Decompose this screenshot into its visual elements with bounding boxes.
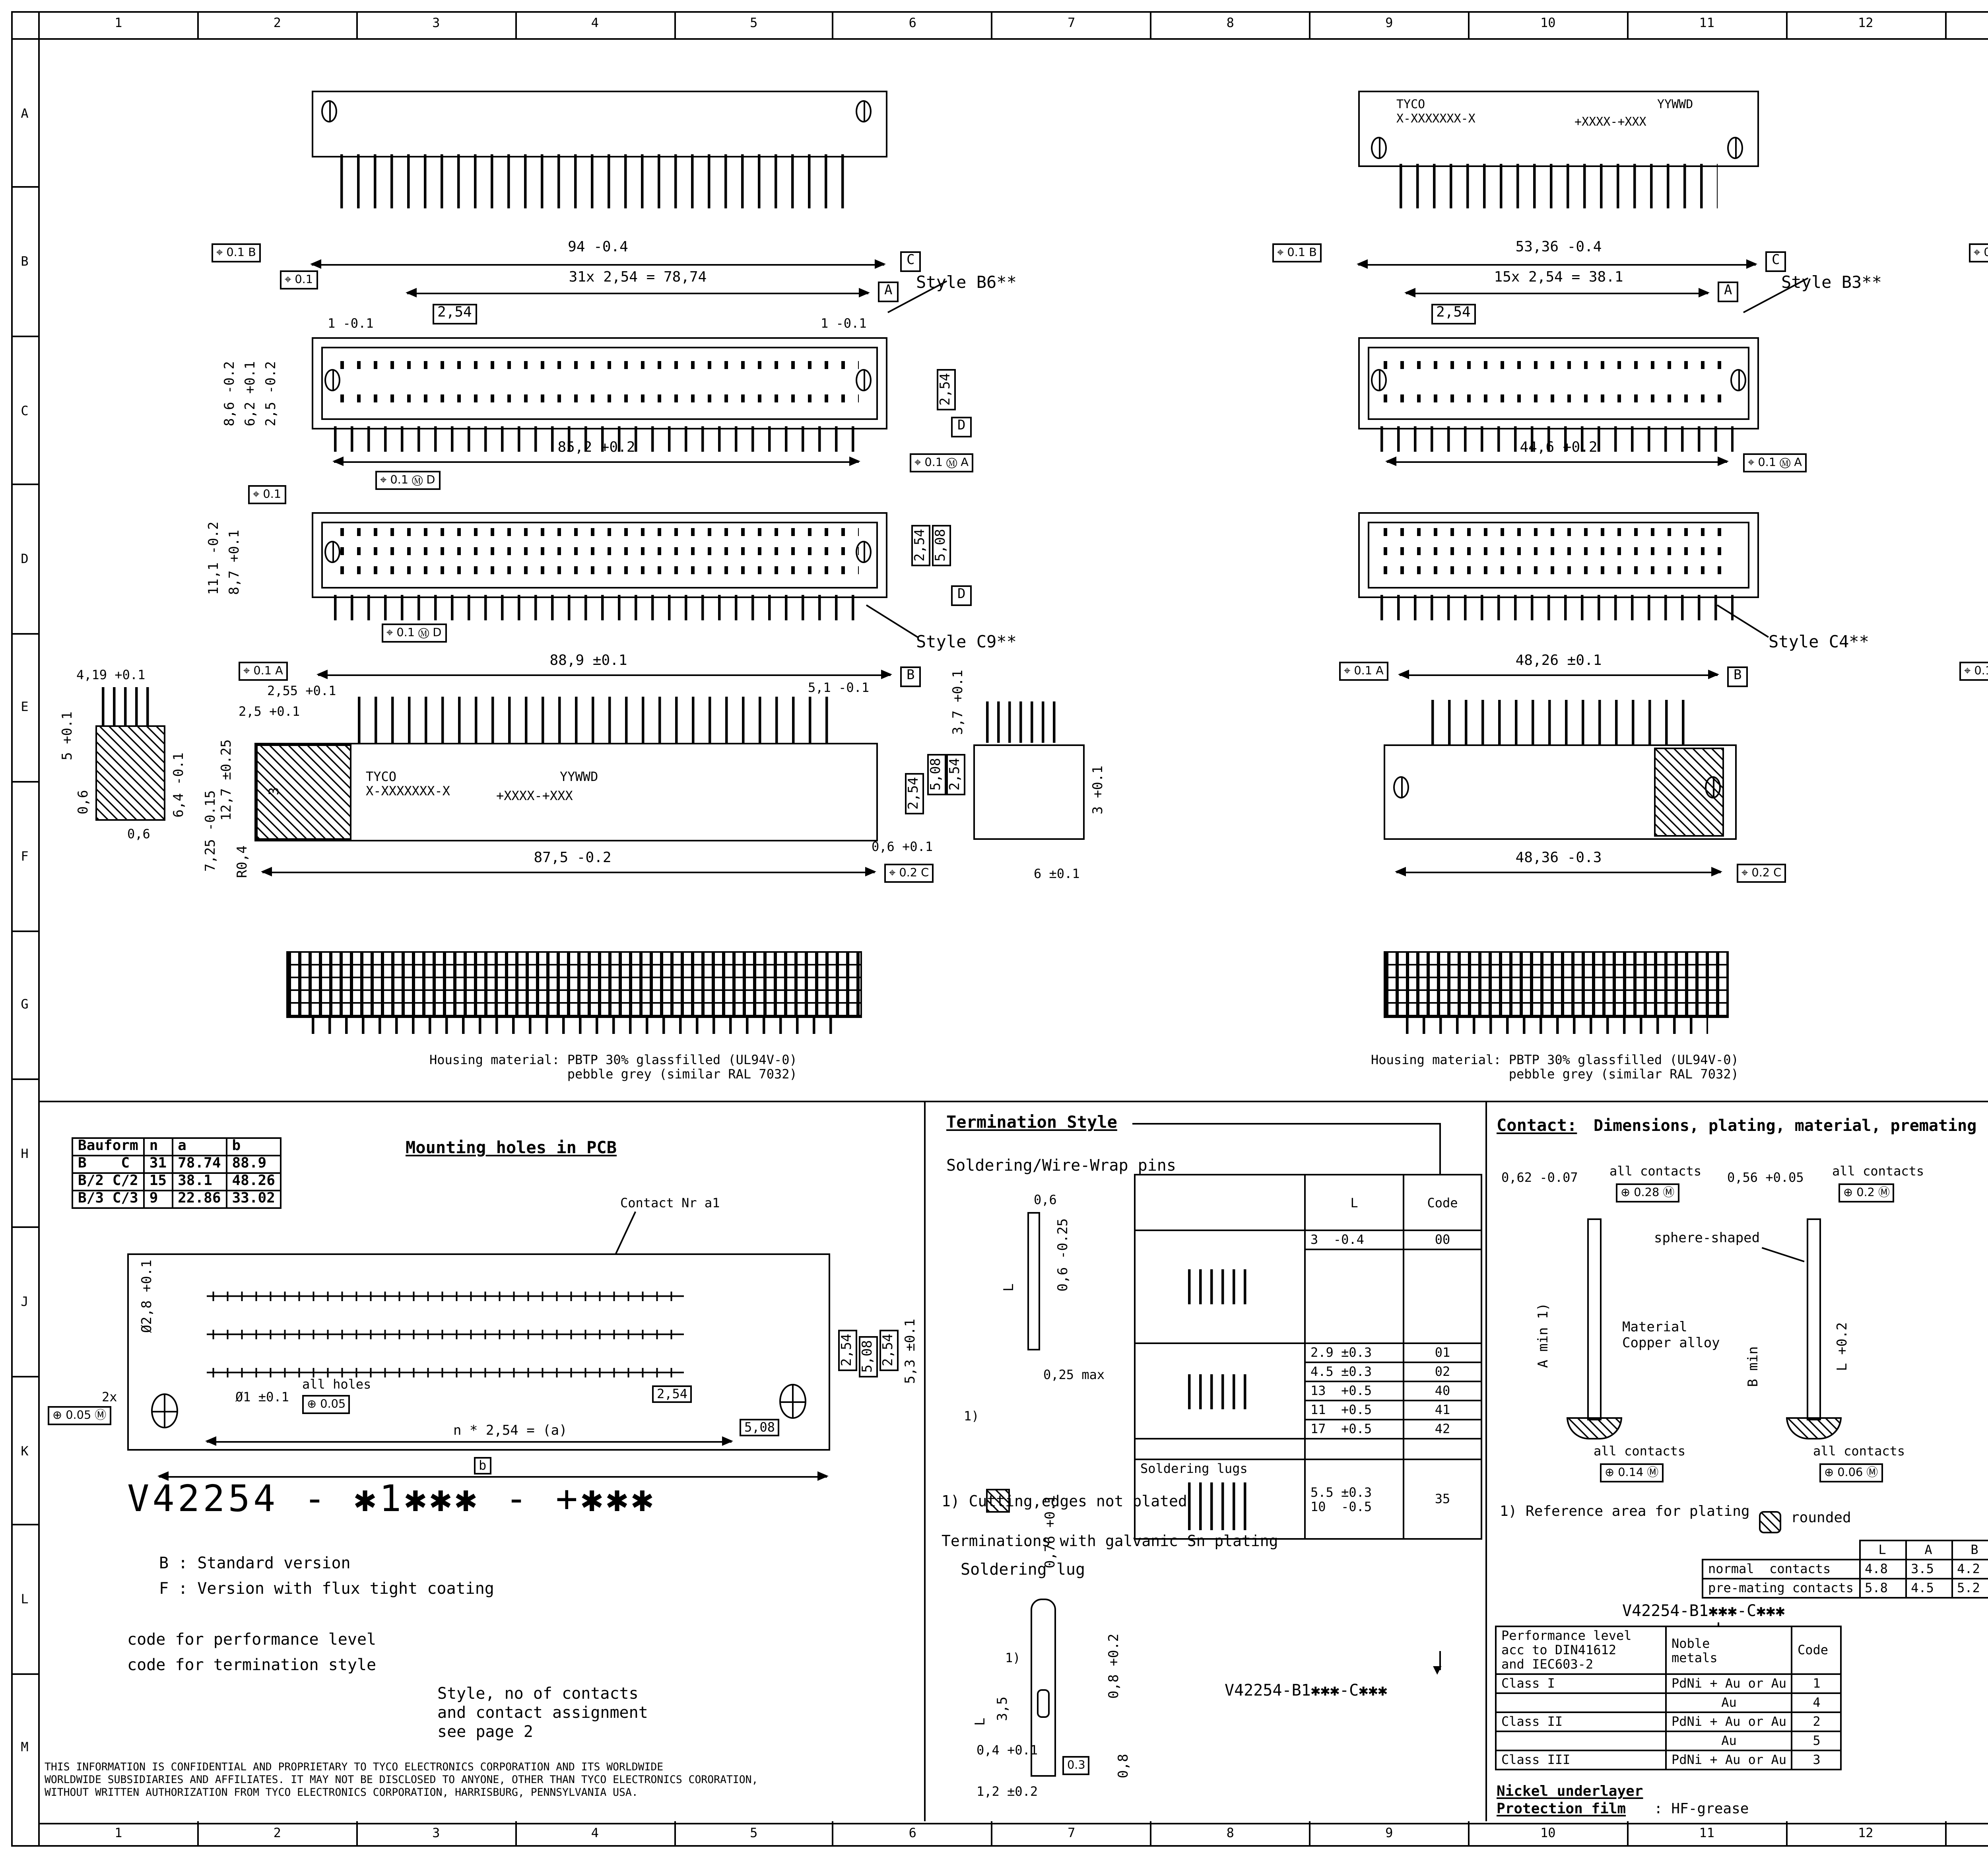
th: A (1905, 1540, 1951, 1560)
pin-sketch (1027, 1212, 1040, 1350)
leader-line (1132, 1123, 1439, 1125)
dim-line (207, 1441, 732, 1443)
lug-hole (1037, 1689, 1050, 1718)
flange-lens-icon (1730, 369, 1746, 391)
arrow-down-icon: ▼ (1433, 1664, 1442, 1676)
marking-tyco: TYCO X-XXXXXXX-X (366, 770, 450, 800)
flange-lens-icon (324, 369, 340, 391)
td: 4.5 ±0.3 (1305, 1362, 1404, 1381)
dim-label: 2,54 (881, 1329, 897, 1371)
td: 31 (144, 1156, 172, 1173)
dim-label: 15x 2,54 = 38.1 (1415, 270, 1702, 287)
dim-label: 7,25 -0.15 (204, 790, 219, 872)
legend-f: F : Version with flux tight coating (159, 1581, 494, 1600)
td: Au (1666, 1731, 1792, 1750)
all-contacts-label: all contacts (1609, 1164, 1701, 1179)
housing-note: Housing material: PBTP 30% glassfilled (… (1371, 1053, 1739, 1083)
dim-label: B min (1746, 1346, 1762, 1387)
subheading-soldering-lug: Soldering lug (961, 1562, 1085, 1579)
fcf-position: ⌖ 0.1 B (1272, 243, 1322, 262)
dim-label: 2,5 +0.1 (239, 705, 300, 720)
flange-lens-icon (1727, 137, 1743, 159)
td: 5 (1792, 1731, 1841, 1750)
contact-row (340, 566, 859, 573)
dim-label: 2,5 -0.2 (264, 361, 280, 426)
performance-table: Performance level acc to DIN41612 and IE… (1495, 1626, 1842, 1770)
section-title-contact: Contact: (1497, 1117, 1577, 1136)
dim-line (1396, 872, 1721, 873)
dim-label: 2,54 (907, 772, 922, 814)
part-number-big: V42254 - ✱1✱✱✱ - +✱✱✱ (127, 1479, 656, 1523)
dim-label: n * 2,54 = (a) (453, 1424, 567, 1439)
dim-label: 0,6 -0.25 (1056, 1218, 1072, 1292)
note-plating-ref: 1) Reference area for plating (1500, 1505, 1750, 1521)
part-number-ref: V42254-B1✱✱✱-C✱✱✱ (1225, 1683, 1387, 1702)
row-label: H (11, 1078, 38, 1227)
column-label: 6 (833, 1821, 992, 1845)
legend-b: B : Standard version (159, 1556, 351, 1574)
panel-divider-1 (924, 1101, 926, 1821)
dim-label: 88,9 ±0.1 (429, 654, 747, 670)
dim-label: R0,4 (235, 845, 251, 878)
note-ref: 1) (1005, 1651, 1021, 1666)
fcf-position: ⊕ 0.14 Ⓜ (1600, 1463, 1663, 1482)
section-title-pcb: Mounting holes in PCB (406, 1139, 617, 1158)
style-label: Style C4** (1769, 633, 1869, 653)
datum-a: A (1718, 282, 1739, 302)
pin-comb (1406, 1018, 1708, 1034)
datum-b: B (1727, 666, 1748, 687)
marking-code: +XXXX-+XXX (1574, 116, 1646, 130)
row-label: J (11, 1227, 38, 1376)
rounded-label: rounded (1791, 1511, 1851, 1528)
dim-box: 2,54 (905, 772, 924, 814)
th: B (1951, 1540, 1988, 1560)
td (1404, 1439, 1481, 1459)
column-label: 9 (1309, 11, 1468, 38)
contact-row (1384, 528, 1727, 535)
all-contacts-label: all contacts (1813, 1444, 1905, 1459)
contact-row (1384, 566, 1727, 573)
dim-label: 0,8 +0.2 (1107, 1634, 1123, 1699)
td: PdNi + Au or Au (1666, 1712, 1792, 1731)
dim-label: 8,6 -0.2 (223, 361, 239, 426)
dim-label: 0,25 max (1043, 1368, 1105, 1383)
marking-tyco: TYCO X-XXXXXXX-X (1396, 99, 1475, 127)
th: Performance level acc to DIN41612 and IE… (1496, 1626, 1666, 1674)
fcf-position: ⌖ 0.1 B (1969, 243, 1988, 262)
pin-image-cell (1135, 1343, 1305, 1439)
fcf-position: ⌖ 0.1 Ⓜ D (375, 471, 440, 490)
contact-row (340, 394, 859, 402)
note-cutting: 1) Cutting,edges not plated (942, 1494, 1187, 1511)
dim-label: 2,54 (1431, 304, 1475, 324)
td: 4 (1792, 1693, 1841, 1712)
fcf-position: ⊕ 0.05 Ⓜ (48, 1406, 111, 1425)
drawing-sheet: 12345678910111213141516 1234567891011121… (0, 0, 1988, 1861)
td: 15 (144, 1173, 172, 1191)
dim-label: 5,08 (934, 524, 949, 566)
dim-label: 0,6 (76, 790, 92, 814)
dim-label: 5 +0.1 (60, 711, 76, 760)
dim-label: 5,3 ±0.1 (903, 1319, 919, 1384)
column-label: 6 (833, 11, 992, 38)
flange-lens-icon (321, 100, 337, 122)
dim-label: Ø2,8 +0.1 (140, 1260, 156, 1333)
th (1135, 1175, 1305, 1230)
column-label: 10 (1468, 1821, 1627, 1845)
dim-label: 31x 2,54 = 78,74 (439, 270, 837, 287)
flange-lens-icon (856, 541, 872, 563)
row-label: M (11, 1673, 38, 1822)
row-label: K (11, 1375, 38, 1524)
bottom-column-ruler: 12345678910111213141516 (38, 1821, 1988, 1845)
td (1496, 1731, 1666, 1750)
dim-label: 0,6 (1034, 1193, 1057, 1208)
td: 02 (1404, 1362, 1481, 1381)
pin-glyph (1188, 1269, 1252, 1304)
dim-label: 6 ±0.1 (1034, 867, 1080, 882)
td (1135, 1439, 1305, 1459)
lab-table: LAB normal contacts4.83.54.2 pre-mating … (1702, 1540, 1988, 1599)
th: Code (1792, 1626, 1841, 1674)
legend-style: Style, no of contacts and contact assign… (437, 1686, 648, 1743)
column-label: 8 (1150, 1821, 1309, 1845)
bottom-view (1384, 951, 1729, 1018)
td: 9 (144, 1191, 172, 1208)
dim-label: 0,62 -0.07 (1501, 1171, 1578, 1186)
column-label: 13 (1944, 11, 1988, 38)
note-plating: Terminations with galvanic Sn plating (942, 1533, 1278, 1551)
dim-label: 6,4 -0.1 (172, 752, 188, 818)
pin-comb (1380, 595, 1734, 620)
flange-lens-icon (856, 369, 872, 391)
dim-label: 2,54 (938, 368, 954, 410)
dim-label: 12,7 ±0.25 (219, 739, 235, 821)
dim-box: 5,08 (859, 1335, 878, 1377)
dim-label: 1 -0.1 (821, 317, 867, 332)
td: normal contacts (1703, 1560, 1859, 1579)
td: 00 (1404, 1230, 1481, 1249)
column-label: 5 (674, 1821, 833, 1845)
row-label: B (11, 187, 38, 336)
column-label: 11 (1627, 11, 1786, 38)
dim-label: 2,55 +0.1 (267, 684, 336, 699)
th: L (1305, 1175, 1404, 1230)
dim-label: 44,6 +0.2 (1431, 441, 1686, 457)
dim-label: 11,1 -0.2 (207, 522, 223, 595)
dim-label: 8,7 +0.1 (227, 530, 243, 595)
dim-line (334, 461, 859, 463)
th: L (1859, 1540, 1905, 1560)
pin-comb (1431, 700, 1686, 744)
section-title-termination: Termination Style (946, 1113, 1117, 1133)
row-label: G (11, 930, 38, 1078)
dim-label: 4,19 +0.1 (76, 668, 145, 683)
note-ref: 1) (964, 1409, 979, 1424)
dim-label: 48,26 ±0.1 (1431, 654, 1686, 670)
dim-label: 87,5 -0.2 (429, 851, 716, 867)
td: 11 +0.5 (1305, 1401, 1404, 1420)
contact-pin (1587, 1218, 1602, 1420)
column-label: 9 (1309, 1821, 1468, 1845)
dim-box: 2,54 (838, 1329, 857, 1371)
td: 5.8 (1859, 1579, 1905, 1598)
fcf-position: ⌖ 0.1 B (212, 243, 261, 262)
th: Code (1404, 1175, 1481, 1230)
td: 13 +0.5 (1305, 1381, 1404, 1401)
fcf-position: ⌖ 0.2 C (1737, 864, 1786, 882)
panel-divider-2 (1485, 1101, 1488, 1821)
contact-row (340, 547, 859, 554)
film-note: Protection film (1497, 1802, 1626, 1819)
dim-box: 2,54 (911, 524, 930, 566)
pin-comb (1400, 164, 1718, 208)
td (1404, 1249, 1481, 1343)
fcf-position: ⊕ 0.28 Ⓜ (1616, 1183, 1679, 1202)
fcf-position: ⌖ 0.1 Ⓜ D (382, 624, 446, 642)
dim-label: 0,56 +0.05 (1727, 1171, 1804, 1186)
flange-lens-icon (1371, 369, 1387, 391)
dim-box: b (474, 1457, 491, 1475)
dim-label: 6,2 +0.1 (243, 361, 259, 426)
mounting-hole (779, 1384, 806, 1419)
td: 41 (1404, 1401, 1481, 1420)
column-label: 1 (38, 1821, 197, 1845)
row-label: F (11, 781, 38, 930)
fcf-position: ⌖ 0.1 A (239, 662, 288, 680)
td: 5.5 ±0.3 10 -0.5 (1305, 1459, 1404, 1539)
hole-row (207, 1368, 684, 1377)
td: Class III (1496, 1750, 1666, 1770)
fcf-position: ⌖ 0.1 (280, 270, 318, 289)
dim-label: 1 -0.1 (328, 317, 374, 332)
dim-label: 3 +0.1 (1091, 765, 1107, 814)
flange-lens-icon (1705, 776, 1721, 798)
film-note-value: : HF-grease (1654, 1802, 1749, 1819)
td: 4.2 (1951, 1560, 1988, 1579)
dim-label: L (973, 1718, 989, 1726)
column-label: 10 (1468, 11, 1627, 38)
disclaimer: THIS INFORMATION IS CONFIDENTIAL AND PRO… (45, 1762, 758, 1799)
dim-line (262, 872, 875, 873)
dim-label: Ø1 ±0.1 (235, 1390, 289, 1405)
dim-label: 0,8 (1116, 1754, 1132, 1778)
contact-row (340, 528, 859, 535)
part-number-ref: V42254-B1✱✱✱-C✱✱✱ (1622, 1603, 1785, 1622)
ef1-right-body (973, 744, 1085, 840)
td: 3.5 (1905, 1560, 1951, 1579)
column-label: 2 (197, 11, 356, 38)
td: 2 (1792, 1712, 1841, 1731)
column-label: 13 (1944, 1821, 1988, 1845)
td: 3 (1792, 1750, 1841, 1770)
dim-box: 5,08 (932, 524, 951, 566)
td: 78.74 (172, 1156, 226, 1173)
hole-row (207, 1292, 684, 1301)
dim-label: 2x (102, 1390, 117, 1405)
fcf-position: ⌖ 0.2 C (884, 864, 934, 882)
dim-label: L +0.2 (1835, 1322, 1851, 1371)
dim-label: 0,6 +0.1 (872, 840, 933, 855)
marking-code: +XXXX-+XXX (496, 789, 573, 804)
bauform-table: Bauformnab B C3178.7488.9 B/2 C/21538.14… (72, 1137, 282, 1209)
dim-label: L (1002, 1284, 1018, 1292)
td: 4.8 (1859, 1560, 1905, 1579)
td: 35 (1404, 1459, 1481, 1539)
td: 1 (1792, 1674, 1841, 1693)
row-label: C (11, 335, 38, 484)
fcf-position: ⌖ 0.1 A (1959, 662, 1988, 680)
dim-line (1358, 264, 1756, 266)
dim-label: 94 -0.4 (471, 240, 725, 256)
dim-box: 5,08 (927, 753, 946, 795)
left-row-ruler: ABCDEFGHJKLM (11, 38, 38, 1821)
contact-row (1384, 394, 1727, 402)
legend-termination: code for termination style (127, 1657, 376, 1676)
column-label: 4 (515, 1821, 674, 1845)
td: pre-mating contacts (1703, 1579, 1859, 1598)
bottom-view (286, 951, 862, 1018)
dim-label: 3 (267, 787, 283, 796)
td: 5.2 (1951, 1579, 1988, 1598)
hole-row (207, 1330, 684, 1339)
marking-datecode: YYWWD (1657, 99, 1693, 113)
td: 4.5 (1905, 1579, 1951, 1598)
contact-row (1384, 547, 1727, 554)
dim-label: 2,54 (948, 753, 964, 795)
pin-comb (102, 687, 156, 725)
td: 17 +0.5 (1305, 1420, 1404, 1439)
pin-comb (986, 701, 1056, 743)
dim-label: 2,54 (840, 1329, 856, 1371)
dim-box: 2,54 (652, 1385, 692, 1404)
mounting-hole (151, 1393, 178, 1428)
legend-performance: code for performance level (127, 1632, 376, 1651)
contact-nr-label: Contact Nr a1 (620, 1196, 720, 1211)
column-label: 5 (674, 11, 833, 38)
td: Class I (1496, 1674, 1666, 1693)
dim-label: A min 1) (1536, 1303, 1552, 1368)
dim-label: 85,2 +0.2 (445, 441, 747, 457)
dim-label: 1,2 ±0.2 (977, 1785, 1038, 1800)
td: Class II (1496, 1712, 1666, 1731)
contact-pin (1807, 1218, 1821, 1420)
all-contacts-label: all contacts (1594, 1444, 1685, 1459)
dim-label: 5,1 -0.1 (808, 681, 869, 696)
dim-line (1406, 293, 1708, 294)
td: 01 (1404, 1343, 1481, 1362)
dim-line (1387, 461, 1727, 463)
th: b (227, 1138, 281, 1156)
b3-front-view-inner (1368, 347, 1749, 420)
all-contacts-label: all contacts (1832, 1164, 1924, 1179)
td: 40 (1404, 1381, 1481, 1401)
fcf-position: ⌖ 0.1 Ⓜ A (1743, 453, 1807, 472)
column-label: 3 (356, 11, 515, 38)
panel-divider-horizontal (38, 1101, 1988, 1103)
dim-label: 3,7 +0.1 (951, 670, 967, 735)
column-label: 8 (1150, 11, 1309, 38)
dim-line (159, 1476, 827, 1478)
td (1496, 1693, 1666, 1712)
flange-lens-icon (856, 100, 872, 122)
row-label: D (11, 484, 38, 633)
b6-rear-view-body (312, 91, 887, 157)
dim-line (318, 674, 891, 676)
pin-glyph (1188, 1482, 1252, 1530)
row-label: L (11, 1524, 38, 1673)
side-view-hatch (95, 725, 165, 821)
column-label: 12 (1786, 11, 1945, 38)
section-title-contact-2: Dimensions, plating, material, premating (1594, 1118, 1976, 1136)
th: Bauform (72, 1138, 144, 1156)
pin-glyph (1188, 1373, 1252, 1408)
contact-row (340, 361, 859, 368)
lug-label: Soldering lugs (1140, 1462, 1248, 1476)
pin-comb (340, 154, 856, 208)
column-label: 1 (38, 11, 197, 38)
column-label: 12 (1786, 1821, 1945, 1845)
sphere-label: sphere-shaped (1654, 1231, 1760, 1247)
td: 33.02 (227, 1191, 281, 1208)
fcf-position: ⌖ 0.1 (248, 485, 286, 504)
dim-label: 5,08 (929, 753, 945, 795)
th: a (172, 1138, 226, 1156)
row-label: A (11, 38, 38, 187)
pin-comb (312, 1018, 837, 1034)
td: 88.9 (227, 1156, 281, 1173)
flange-lens-icon (1371, 137, 1387, 159)
column-label: 2 (197, 1821, 356, 1845)
column-label: 11 (1627, 1821, 1786, 1845)
dim-line (1400, 674, 1718, 676)
th: n (144, 1138, 172, 1156)
dim-line (407, 293, 868, 294)
td: 48.26 (227, 1173, 281, 1191)
td (1305, 1439, 1404, 1459)
dim-box: 2,54 (879, 1329, 899, 1371)
td: B/2 C/2 (72, 1173, 144, 1191)
dim-box: 2,54 (937, 368, 956, 410)
pin-image-cell (1135, 1230, 1305, 1343)
td: B/3 C/3 (72, 1191, 144, 1208)
pin-comb (334, 595, 859, 620)
td: 3 -0.4 (1305, 1230, 1404, 1249)
flange-lens-icon (1393, 776, 1409, 798)
datum-b: B (900, 666, 921, 687)
td: B C (72, 1156, 144, 1173)
dim-label: 0,4 +0.1 (977, 1743, 1038, 1758)
nickel-note: Nickel underlayer (1497, 1785, 1643, 1801)
dim-label: all holes (302, 1377, 371, 1393)
housing-note: Housing material: PBTP 30% glassfilled (… (429, 1053, 797, 1083)
fcf-position: ⌖ 0.1 A (1339, 662, 1388, 680)
dim-line (312, 264, 884, 266)
datum-a: A (878, 282, 899, 302)
dim-label: 5,08 (860, 1335, 876, 1377)
dim-label: 53,36 -0.4 (1400, 240, 1718, 256)
column-label: 4 (515, 11, 674, 38)
column-label: 3 (356, 1821, 515, 1845)
subheading-wirewrap: Soldering/Wire-Wrap pins (946, 1158, 1176, 1175)
td: PdNi + Au or Au (1666, 1750, 1792, 1770)
termination-table: LCode 3 -0.400 2.9 ±0.301 4.5 ±0.302 13 … (1134, 1174, 1482, 1540)
datum-c: C (1765, 251, 1786, 272)
dim-label: 48,36 -0.3 (1431, 851, 1686, 867)
fcf-position: ⌖ 0.1 Ⓜ A (910, 453, 973, 472)
td: 22.86 (172, 1191, 226, 1208)
